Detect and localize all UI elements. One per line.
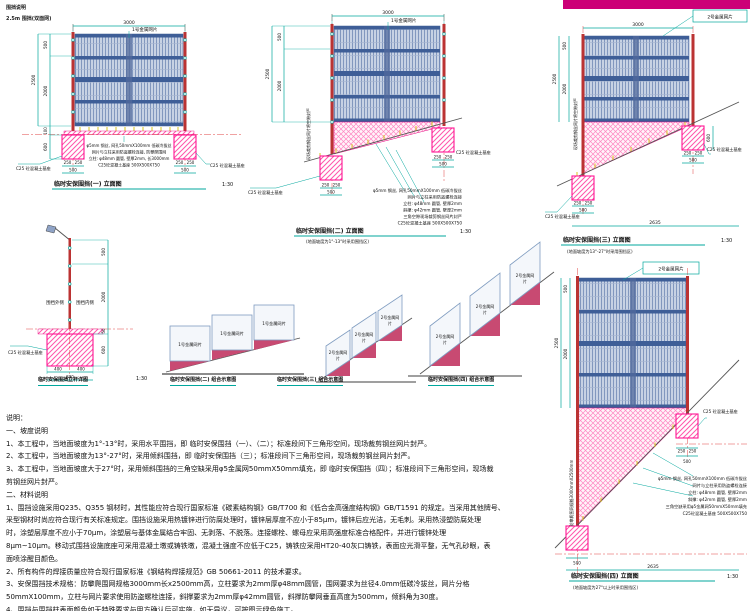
callout-right: C25 砼混凝土基座 [707, 146, 742, 153]
callout-base: C25 砼混凝土基座 [8, 349, 43, 356]
elevation-4-title: 临时安保围挡(四) 立面图 1:30 (地面坡度为27°以上时采用围挡区) [569, 572, 738, 591]
drawing-scale: 1:30 [721, 238, 732, 244]
caption-combo-3: 临时安保围挡(三) 组合示意图 [277, 376, 343, 386]
dim-seg2: 2000 [43, 85, 48, 96]
drawing-scale: 1:30 [460, 229, 471, 235]
spec-line: 网片与立柱采用防盗螺栓连接 [693, 482, 748, 489]
dim-foot: 600 [706, 134, 711, 142]
dim-w: 400 [77, 367, 85, 372]
spec-line: 网片与立柱采用防盗螺栓连接 [408, 194, 463, 201]
dim-fw: 250 [689, 449, 697, 454]
callout-left: C25 砼混凝土基座 [16, 165, 51, 172]
caption-post-detail-scale: 1:30 [136, 376, 147, 382]
dim-bottom: 2635 [649, 220, 661, 226]
notes-line: 2、本工程中，当地面坡度为13°-27°时，采用倾斜围挡，即 临时安保围挡（三）… [6, 450, 551, 463]
dim-fww: 500 [181, 168, 189, 173]
dim-foot: 600 [43, 143, 48, 151]
caption-combo-4: 临时安保围挡(四) 组合示意图 [428, 376, 494, 386]
panel-label: 片 [523, 278, 527, 284]
mesh-label-box: 2号金属网片 [707, 14, 733, 21]
dim-fw: 250 [434, 155, 442, 160]
elevation-3-geometry [557, 26, 739, 214]
elevation-1-drawing: 3000 2500 500 2000 100 600 250 250 500 2… [14, 18, 249, 200]
dim-fw: 250 [445, 155, 453, 160]
panel-label: 片 [388, 320, 392, 326]
panel-label: 片 [362, 337, 366, 343]
notes-line: 说明： [6, 412, 551, 425]
dim-fw: 250 [322, 183, 330, 188]
notes-line: 50mmX100mm，立柱与网片要求使用防盗螺栓连接，斜撑要求为2mm厚φ42m… [6, 591, 551, 604]
caption-post-detail: 临时安保围挡立杆详图 [38, 376, 88, 386]
combo-2-drawing: 1号金属网片 1号金属网片 1号金属网片 [158, 290, 308, 382]
dim-fw: 250 [684, 151, 692, 156]
dim-fww: 500 [579, 208, 587, 213]
dim-fw: 250 [678, 449, 686, 454]
dim-top: 3000 [123, 20, 135, 26]
notes-line: 面喷涂醒目颜色。 [6, 553, 551, 566]
dim-fww: 500 [327, 190, 335, 195]
spec-line: 网片与立柱采用防盗螺栓连接, 防攀爬围网 [92, 149, 167, 155]
dim-top: 3000 [382, 10, 394, 16]
elevation-3-title: 临时安保围挡(三) 立面图 1:30 (地面坡度为13°-27°时采用围挡区) [561, 236, 732, 255]
spec-line: φ5mm 钢丝, 网孔50mmX100mm 低碳冷拔丝 [658, 475, 747, 482]
elevation-3-drawing: 3000 2500 500 2000 600 250 250 500 250 2… [543, 4, 750, 260]
panel-label: 1号金属网片 [262, 320, 286, 327]
panel-label: 2号金属网 [476, 303, 495, 309]
dim-total: 2500 [265, 68, 270, 79]
panel-label: 1号金属网片 [178, 341, 202, 348]
notes-line: 时，涂塑层厚度不应小于70μm，涂塑层与基体金属结合牢固、无剥落、不脱落。连接螺… [6, 527, 551, 540]
drawing-scale: 1:30 [222, 182, 233, 188]
drawing-subtitle: (地面坡度为27°以上时采用围挡区) [573, 584, 638, 591]
dim-seg2: 2000 [277, 80, 282, 91]
panel-label: 2号金属网 [381, 314, 400, 320]
dim-seg2: 2000 [101, 291, 106, 302]
panel-label: 2号金属网 [329, 349, 348, 355]
dim-seg2: 2000 [562, 83, 567, 94]
dim-fw: 250 [695, 151, 703, 156]
label-outside: 围挡外侧 [46, 299, 64, 306]
spec-line: φ5mm 钢丝, 网孔50mmX100mm 低碳冷拔丝 [373, 187, 462, 194]
dim-fw: 250 [585, 201, 593, 206]
elevation-1-title: 临时安保围挡(一) 立面图 1:30 [52, 180, 233, 189]
callout-right: C25 砼混凝土基座 [210, 162, 245, 169]
callout-left: C25 砼混凝土基座 [248, 189, 283, 196]
dim-fw: 250 [187, 160, 195, 165]
notes-line: 剪钢丝网片封严。 [6, 476, 551, 489]
dim-seg1: 500 [562, 42, 567, 50]
notes-block: 说明： 一、坡度说明 1、本工程中，当地面坡度为1°-13°时，采用水平围挡，即… [6, 412, 551, 611]
drawing-title: 临时安保围挡(三) 立面图 [563, 236, 631, 244]
dim-bottom: 2635 [647, 564, 659, 570]
sheet-note-1: 围挡说明 [6, 5, 26, 12]
notes-line: 1、本工程中，当地面坡度为1°-13°时，采用水平围挡，即 临时安保围挡（一）、… [6, 438, 551, 451]
spec-line: C25砼混凝土基座 500X500X750 [98, 162, 160, 168]
dim-fw: 250 [176, 160, 184, 165]
drawing-title: 临时安保围挡(一) 立面图 [54, 180, 122, 188]
drawing-title: 临时安保围挡(二) 立面图 [296, 227, 364, 235]
spec-line: 立柱: φ48mm 圆管, 壁厚2mm [688, 489, 747, 496]
mesh-label: 1号金属网片 [391, 17, 417, 24]
panel-label: 1号金属网片 [220, 330, 244, 337]
dim-total: 2500 [552, 73, 557, 84]
dim-seg1: 500 [43, 41, 48, 49]
dim-fw: 250 [64, 160, 72, 165]
dim-foot: 600 [101, 346, 106, 354]
label-inside: 围挡内侧 [76, 299, 94, 306]
notes-line: 采型钢材时尚应符合现行有关标准规定。围挡设施采用热镀锌进行防腐处理时，镀锌层厚度… [6, 514, 551, 527]
rotated-note: 现场裁剪钢丝网片将空隙封严 [305, 108, 311, 160]
elevation-4-geometry [555, 268, 747, 574]
dim-w: 400 [54, 367, 62, 372]
drawing-sheet: 围挡说明 2.5m 围挡(双面网) [0, 0, 750, 611]
dim-seg3: 50 [101, 328, 106, 334]
notes-line: 3、本工程中，当地面坡度大于27°时，采用倾斜围挡的三角空缺采用φ5金属网50m… [6, 463, 551, 476]
notes-line: 二、材料说明 [6, 489, 551, 502]
dim-fw: 250 [574, 201, 582, 206]
callout-right: C25 砼混凝土基座 [456, 149, 491, 156]
panel-label: 片 [483, 309, 487, 315]
mesh-label-box: 2号金属网片 [658, 266, 684, 273]
caption-combo-2: 临时安保围挡(二) 组合示意图 [170, 376, 236, 386]
spec-line: C25砼混凝土基座 500X500X750 [398, 220, 463, 227]
elevation-4-drawing: 2500 500 2000 250 250 500 500 2635 2号金属网… [543, 258, 750, 606]
spec-line: 立柱: φ48mm 圆管, 壁厚2mm, 长3000mm [89, 155, 170, 161]
callout-right: C25 砼混凝土基座 [703, 408, 738, 415]
spec-line: 斜撑: φ42mm 圆管, 壁厚2mm [403, 207, 462, 214]
notes-line: 一、坡度说明 [6, 425, 551, 438]
dim-fww: 500 [573, 561, 581, 566]
dim-fww: 500 [689, 158, 697, 163]
notes-line: 4、围挡与围挡柱表面颜色如无特殊要求与甲方确认后可实施，如无异议，可按图示绿色施… [6, 604, 551, 611]
panel-label: 片 [443, 339, 447, 345]
notes-line: 8μm~10μm。移动式围挡设施底座可采用混凝土墩或铸铁墩，混凝土强度不应低于C… [6, 540, 551, 553]
combo-4-drawing: 2号金属网 片 2号金属网 片 2号金属网 片 [402, 238, 567, 388]
dim-gap: 100 [43, 127, 48, 135]
mesh-label: 1号金属网片 [132, 26, 158, 33]
notes-line: 1、围挡设施采用Q235、Q355 钢材时，其性能应符合现行国家标准《碳素结构钢… [6, 502, 551, 515]
drawing-subtitle: (地面坡度为1°-13°时采用围挡区) [306, 238, 369, 245]
notes-line: 3、安保围挡技术规格：防攀爬围网规格3000mm长x2500mm高，立柱要求为2… [6, 578, 551, 591]
spec-line: C25砼混凝土基座 500X500X750 [683, 510, 748, 517]
drawing-scale: 1:30 [727, 574, 738, 580]
spec-line: 斜撑: φ42mm 圆管, 壁厚2mm [688, 496, 747, 503]
dim-seg1: 500 [101, 248, 106, 256]
drawing-title: 临时安保围挡(四) 立面图 [571, 572, 639, 580]
panel-label: 2号金属网 [355, 331, 374, 337]
panel-label: 片 [336, 355, 340, 361]
spec-line: φ5mm 钢丝, 网孔50mmX100mm 低碳冷拔丝 [86, 142, 171, 148]
dim-fww: 500 [683, 459, 691, 464]
elevation-2-drawing: 3000 2500 500 2000 250 250 500 250 250 5… [246, 4, 496, 244]
spec-line: 三角空隙现场裁剪钢丝网片封严 [403, 213, 462, 220]
post-detail-drawing: 500 2000 50 600 400 400 800 围挡外侧 围挡内侧 C2… [8, 224, 153, 392]
dim-total: 2500 [31, 74, 36, 85]
dim-fww: 500 [439, 162, 447, 167]
spec-line: 三角空缺采用φ5金属网50mmX50mm填充 [666, 503, 747, 510]
dim-fw: 250 [75, 160, 83, 165]
drawing-subtitle: (地面坡度为13°-27°时采用围挡区) [567, 248, 633, 255]
dim-fww: 500 [69, 168, 77, 173]
spec-line: 立柱: φ48mm 圆管, 壁厚2mm [403, 200, 462, 207]
rotated-note: 防攀爬围网规格3000mmX2500mm [568, 460, 574, 527]
dim-seg1: 500 [277, 33, 282, 41]
panel-label: 2号金属网 [436, 333, 455, 339]
callout-left: C25 砼混凝土基座 [545, 213, 580, 220]
dim-fw: 250 [333, 183, 341, 188]
panel-label: 2号金属网 [516, 272, 535, 278]
dim-top: 3000 [632, 22, 644, 28]
notes-line: 2、所有构件的焊接质量应符合现行国家标准《钢结构焊接规范》GB 50661-20… [6, 566, 551, 579]
rotated-note: 现场裁剪钢丝网片将空隙封严 [572, 98, 578, 150]
